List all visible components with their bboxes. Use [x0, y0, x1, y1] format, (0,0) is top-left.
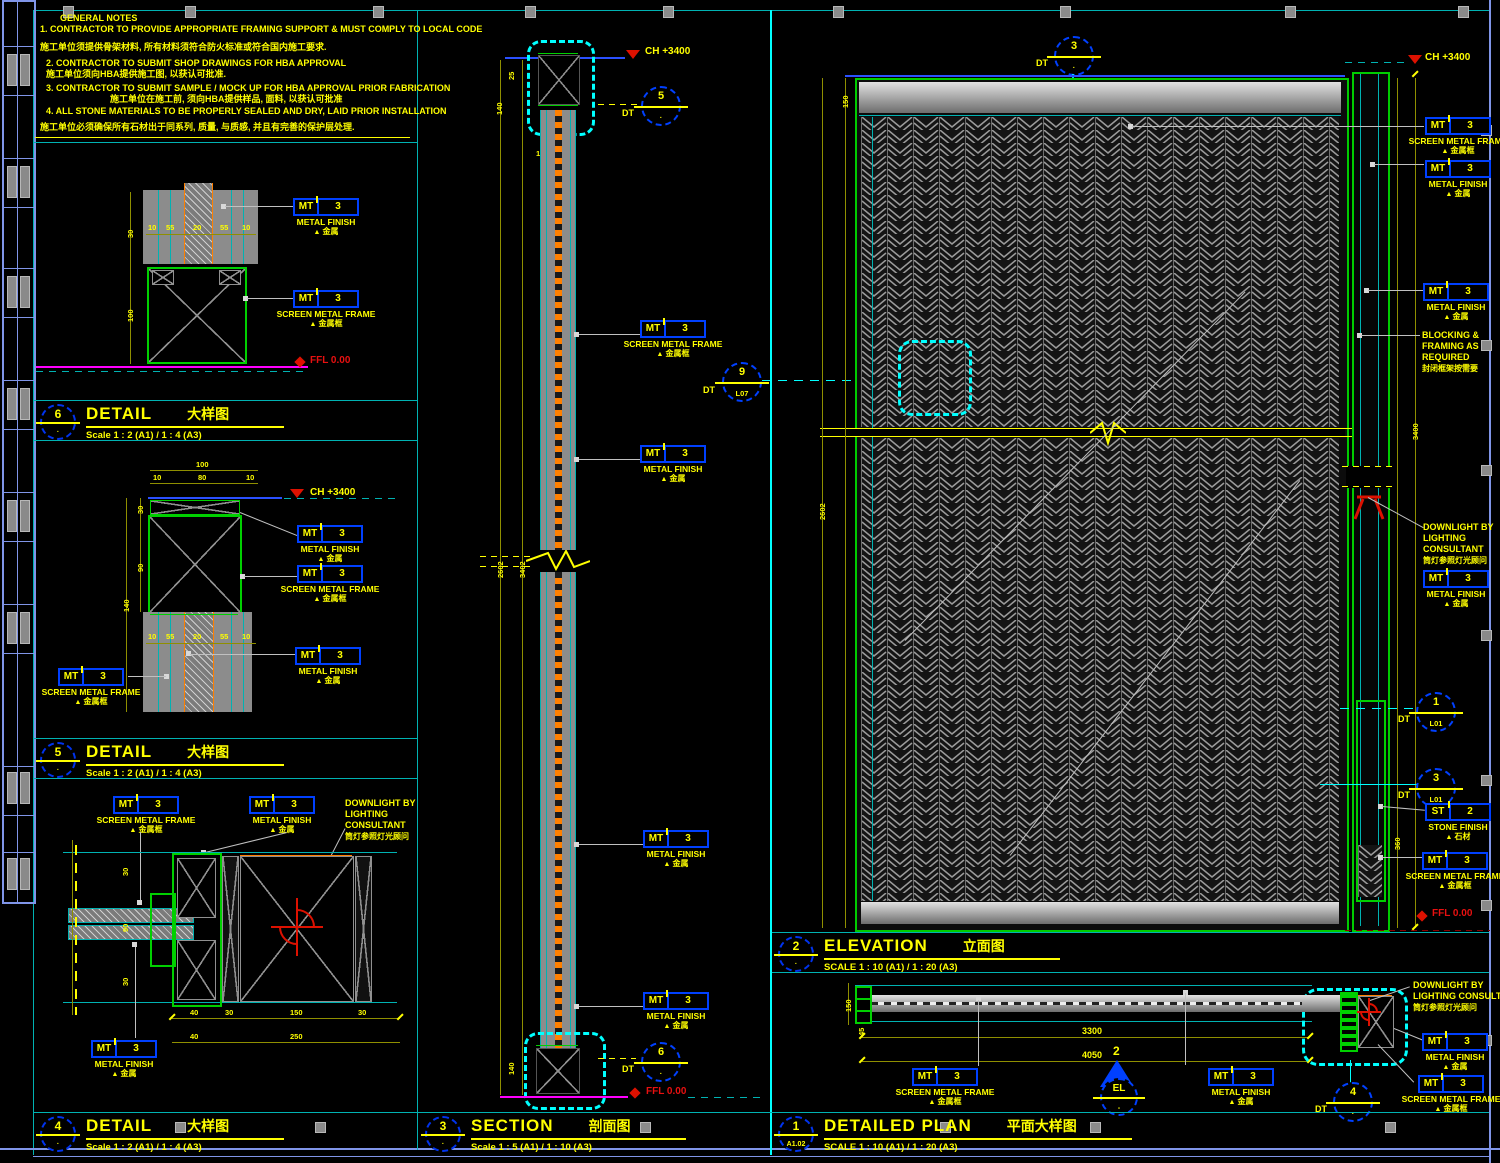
tag-metal-finish: MT3 METAL FINISH ▲金属 — [217, 796, 347, 835]
tag-box: MT3 — [1208, 1068, 1274, 1086]
tag-box: MT3 — [58, 668, 124, 686]
title-bubble: 3· — [425, 1116, 461, 1152]
tag-box: MT3 — [249, 796, 315, 814]
tag-box: MT3 — [91, 1040, 157, 1058]
tag-metal-finish: MT3 METAL FINISH ▲金属 — [261, 198, 391, 237]
title-bubble: 1A1.02 — [778, 1116, 814, 1152]
viewport-divider-1 — [417, 10, 418, 1150]
downlight-note: DOWNLIGHT BY — [1423, 522, 1494, 533]
detail-callout-bubble: 3L01 — [1416, 768, 1456, 808]
tag-box: MT3 — [113, 796, 179, 814]
tag-screen-metal-frame: MT3 SCREEN METAL FRAME ▲金属框 — [26, 668, 156, 707]
herringbone-return — [1358, 845, 1382, 897]
tag-box: ST2 — [1425, 803, 1491, 821]
ch-marker-icon — [1408, 55, 1422, 64]
tag-screen-metal-frame: MT3 SCREEN METAL FRAME ▲金属框 — [880, 1068, 1010, 1107]
sheet-edge-strip — [2, 0, 36, 904]
note-line: 1. CONTRACTOR TO PROVIDE APPROPRIATE FRA… — [40, 24, 482, 35]
section-cut-bubble: 3· — [1054, 36, 1094, 76]
detail-ceiling-title: 5· DETAIL大样图 Scale 1 : 2 (A1) / 1 : 4 (A… — [40, 742, 284, 779]
detail-callout-bubble: 9L07 — [722, 362, 762, 402]
detail-callout-bubble: 4· — [1333, 1082, 1373, 1122]
notes-header: GENERAL NOTES — [60, 13, 137, 24]
downlight-symbol-icon — [1355, 998, 1383, 1026]
tag-box: MT3 — [1422, 852, 1488, 870]
triangle-icon: ▲ — [130, 827, 137, 834]
dt-label: DT — [1398, 790, 1410, 801]
tag-metal-finish: MT3 METAL FINISH ▲金属 — [263, 647, 393, 686]
elevation-title: 2· ELEVATION立面图 SCALE 1 : 10 (A1) / 1 : … — [778, 936, 1060, 973]
tag-screen-metal-frame: MT3 SCREEN METAL FRAME ▲金属框 — [261, 290, 391, 329]
ch-marker-icon — [626, 50, 640, 59]
tag-screen-metal-frame: MT3 SCREEN METAL FRAME ▲金属框 — [1393, 117, 1500, 156]
note-line: 施工单位须提供骨架材料, 所有材料须符合防火标准或符合国内施工要求. — [40, 42, 327, 53]
downlight-symbol-icon — [268, 898, 326, 956]
ffl-marker-icon — [629, 1087, 640, 1098]
view-title: DETAIL — [86, 742, 152, 761]
downlight-note: DOWNLIGHT BY — [345, 798, 416, 809]
detail-callout-bubble: 5· — [641, 86, 681, 126]
hatched-core — [184, 612, 214, 712]
floor-dash-line — [1345, 930, 1490, 931]
ch-marker-icon — [290, 489, 304, 498]
dt-label: DT — [703, 385, 715, 396]
tag-metal-finish: MT3 METAL FINISH ▲金属 — [611, 830, 741, 869]
tag-box: MT3 — [1423, 283, 1489, 301]
view-title: DETAILED PLAN — [824, 1116, 972, 1135]
bottom-rail — [861, 902, 1339, 924]
sheet-border-bottom2 — [33, 1156, 1489, 1157]
triangle-icon: ▲ — [1443, 1064, 1450, 1071]
triangle-icon: ▲ — [657, 351, 664, 358]
screen-frame-box — [148, 515, 242, 614]
view-title: DETAIL — [86, 404, 152, 423]
tag-box: MT3 — [912, 1068, 978, 1086]
tag-box: MT3 — [293, 290, 359, 308]
detail-plan-title: 4· DETAIL大样图 Scale 1 : 2 (A1) / 1 : 4 (A… — [40, 1116, 284, 1153]
view-title: SECTION — [471, 1116, 554, 1135]
tag-screen-metal-frame: MT3 SCREEN METAL FRAME ▲金属框 — [608, 320, 738, 359]
tag-metal-finish: MT3 METAL FINISH ▲金属 — [1390, 1033, 1500, 1072]
note-line: 施工单位必须确保所有石材出于同系列, 质量, 与质感, 并且有完善的保护层处理. — [40, 122, 355, 133]
tag-box: MT3 — [297, 565, 363, 583]
tag-box: MT3 — [293, 198, 359, 216]
ffl-line — [500, 1096, 628, 1098]
tag-box: MT3 — [1418, 1075, 1484, 1093]
tag-box: MT3 — [1425, 117, 1491, 135]
tag-box: MT3 — [1423, 570, 1489, 588]
view-title: ELEVATION — [824, 936, 928, 955]
blocking-note: BLOCKING & — [1422, 330, 1479, 341]
triangle-icon: ▲ — [316, 678, 323, 685]
ffl-label: FFL 0.00 — [310, 355, 350, 366]
tag-metal-finish: MT3 METAL FINISH ▲金属 — [1391, 283, 1500, 322]
view-title: DETAIL — [86, 1116, 152, 1135]
tag-box: MT3 — [640, 320, 706, 338]
triangle-icon: ▲ — [314, 596, 321, 603]
ch-label: CH +3400 — [1425, 52, 1470, 63]
view-scale: Scale 1 : 5 (A1) / 1 : 10 (A3) — [471, 1142, 686, 1153]
note-line: 施工单位在施工前, 须向HBA提供样品, 面料, 以获认可批准 — [110, 94, 343, 105]
tag-box: MT3 — [643, 830, 709, 848]
dt-label: DT — [622, 1064, 634, 1075]
detail-callout-bubble: 1L01 — [1416, 692, 1456, 732]
sheet-border-top — [33, 10, 1489, 11]
triangle-icon: ▲ — [112, 1071, 119, 1078]
triangle-icon: ▲ — [270, 827, 277, 834]
tag-box: MT3 — [1425, 160, 1491, 178]
tag-screen-metal-frame: MT3 SCREEN METAL FRAME ▲金属框 — [81, 796, 211, 835]
triangle-icon: ▲ — [661, 476, 668, 483]
break-symbol — [526, 550, 590, 572]
tag-metal-finish: MT3 METAL FINISH ▲金属 — [608, 445, 738, 484]
triangle-icon: ▲ — [1439, 883, 1446, 890]
dt-label: DT — [1036, 58, 1048, 69]
ch-label: CH +3400 — [310, 487, 355, 498]
fold-mark — [7, 54, 17, 86]
note-line: 施工单位须向HBA提供施工图, 以获认可批准. — [46, 69, 226, 80]
triangle-icon: ▲ — [1446, 834, 1453, 841]
triangle-icon: ▲ — [1444, 601, 1451, 608]
title-bubble: 5· — [40, 742, 76, 778]
note-line: 4. ALL STONE MATERIALS TO BE PROPERLY SE… — [46, 106, 447, 117]
title-bubble: 2· — [778, 936, 814, 972]
title-bubble: 6· — [40, 404, 76, 440]
triangle-icon: ▲ — [75, 699, 82, 706]
downlight-note: DOWNLIGHT BY — [1413, 980, 1484, 991]
tag-screen-metal-frame: MT3 SCREEN METAL FRAME ▲金属框 — [1386, 1075, 1500, 1114]
detail-callout-bubble: 6· — [641, 1042, 681, 1082]
centerline — [75, 845, 77, 1015]
ceiling-line — [845, 75, 1345, 77]
tag-screen-metal-frame: MT3 SCREEN METAL FRAME ▲金属框 — [265, 565, 395, 604]
core-dashes — [555, 110, 562, 1050]
tag-metal-finish: MT3 METAL FINISH ▲金属 — [1391, 570, 1500, 609]
triangle-icon: ▲ — [664, 1023, 671, 1030]
tag-screen-metal-frame: MT3 SCREEN METAL FRAME ▲金属框 — [1390, 852, 1500, 891]
viewport-divider-2 — [770, 10, 772, 1155]
note-line: 2. CONTRACTOR TO SUBMIT SHOP DRAWINGS FO… — [46, 58, 346, 69]
tag-box: MT3 — [1422, 1033, 1488, 1051]
triangle-icon: ▲ — [310, 321, 317, 328]
top-rail — [859, 82, 1341, 113]
dt-label: DT — [622, 108, 634, 119]
tag-metal-finish: MT3 METAL FINISH ▲金属 — [1393, 160, 1500, 199]
detail-floor-title: 6· DETAIL大样图 Scale 1 : 2 (A1) / 1 : 4 (A… — [40, 404, 284, 441]
elevation-marker-bubble: EL- — [1100, 1078, 1138, 1116]
view-scale: SCALE 1 : 10 (A1) / 1 : 20 (A3) — [824, 1142, 1132, 1153]
tag-box: MT3 — [640, 445, 706, 463]
tag-box: MT3 — [297, 525, 363, 543]
tag-stone-finish: ST2 STONE FINISH ▲石材 — [1393, 803, 1500, 842]
triangle-icon: ▲ — [314, 229, 321, 236]
section-title: 3· SECTION剖面图 Scale 1 : 5 (A1) / 1 : 10 … — [425, 1116, 686, 1153]
tag-metal-finish: MT3 METAL FINISH ▲金属 — [611, 992, 741, 1031]
dim-label: 3300 — [1082, 1026, 1102, 1037]
ceiling-line — [148, 497, 282, 499]
view-scale: Scale 1 : 2 (A1) / 1 : 4 (A3) — [86, 1142, 284, 1153]
herringbone-screen-lower — [861, 438, 1339, 901]
ffl-label: FFL 0.00 — [646, 1086, 686, 1097]
triangle-icon: ▲ — [1229, 1099, 1236, 1106]
detailed-plan-title: 1A1.02 DETAILED PLAN平面大样图 SCALE 1 : 10 (… — [778, 1116, 1132, 1153]
ffl-label: FFL 0.00 — [1432, 908, 1472, 919]
triangle-icon: ▲ — [318, 556, 325, 563]
note-line: 3. CONTRACTOR TO SUBMIT SAMPLE / MOCK UP… — [46, 83, 450, 94]
triangle-icon: ▲ — [1444, 314, 1451, 321]
ffl-line — [36, 366, 308, 368]
title-bubble: 4· — [40, 1116, 76, 1152]
tag-metal-finish: MT3 METAL FINISH ▲金属 — [1176, 1068, 1306, 1107]
tag-metal-finish: MT3 METAL FINISH ▲金属 — [59, 1040, 189, 1079]
tag-box: MT3 — [295, 647, 361, 665]
dt-label: DT — [1398, 714, 1410, 725]
detail-callout-box — [898, 340, 972, 416]
triangle-icon: ▲ — [1442, 148, 1449, 155]
elev-ref-number: 2 — [1113, 1046, 1120, 1057]
triangle-icon: ▲ — [1446, 191, 1453, 198]
triangle-icon: ▲ — [664, 861, 671, 868]
triangle-icon: ▲ — [929, 1099, 936, 1106]
tag-metal-finish: MT3 METAL FINISH ▲金属 — [265, 525, 395, 564]
ffl-marker-icon — [1416, 910, 1427, 921]
tag-box: MT3 — [643, 992, 709, 1010]
dt-label: DT — [1315, 1104, 1327, 1115]
ch-label: CH +3400 — [645, 46, 690, 57]
cad-drawing-sheet: { "colors":{"yellow":"#ffff00","tag_blue… — [0, 0, 1500, 1163]
